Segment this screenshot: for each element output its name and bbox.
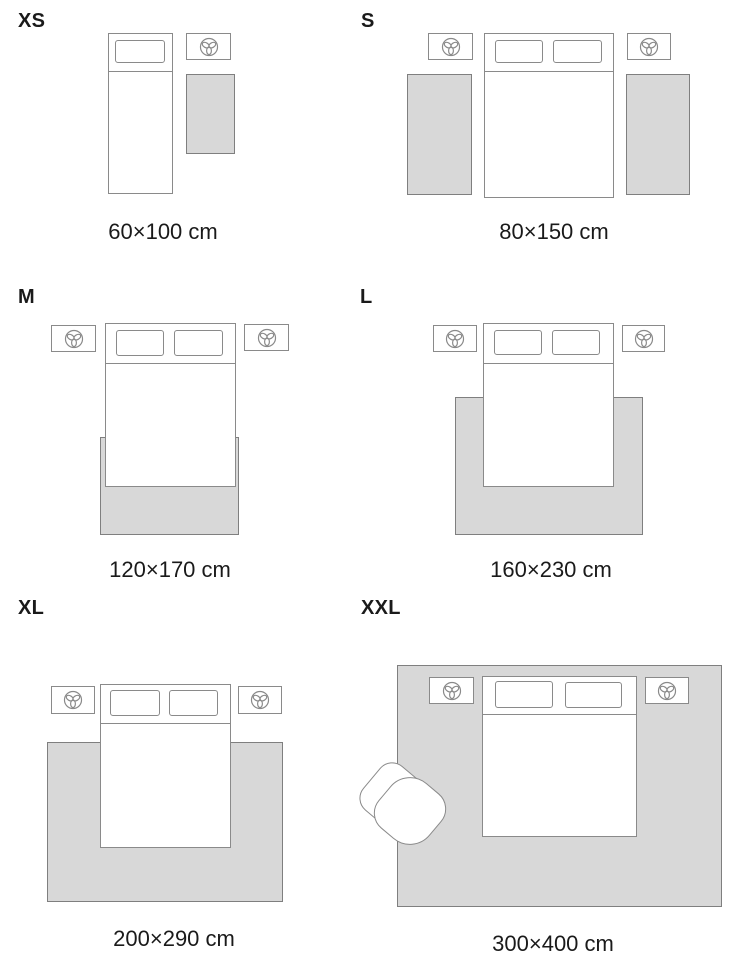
- plant-icon: [440, 36, 462, 58]
- double-bed: [482, 676, 637, 837]
- panel-xl-title: XL: [18, 597, 44, 619]
- single-bed: [108, 33, 173, 194]
- pillow: [495, 681, 553, 708]
- rug-left: [407, 74, 472, 195]
- panel-xl: XL: [0, 590, 360, 960]
- pillow: [115, 40, 165, 63]
- panel-m-size: 120×170 cm: [109, 558, 231, 582]
- pillow: [552, 330, 600, 355]
- plant-icon: [656, 680, 678, 702]
- nightstand: [51, 686, 95, 714]
- pillow: [494, 330, 542, 355]
- double-bed: [105, 323, 236, 487]
- armchair: [363, 765, 443, 849]
- nightstand: [51, 325, 96, 352]
- plant-icon: [444, 328, 466, 350]
- nightstand: [622, 325, 665, 352]
- nightstand: [238, 686, 282, 714]
- panel-l: L: [360, 280, 740, 590]
- panel-xxl-size: 300×400 cm: [492, 932, 614, 956]
- panel-xs-title: XS: [18, 10, 45, 32]
- panel-s: S: [360, 0, 740, 260]
- panel-l-title: L: [360, 286, 373, 308]
- pillow: [110, 690, 160, 716]
- panel-s-title: S: [361, 10, 375, 32]
- plant-icon: [638, 36, 660, 58]
- nightstand: [645, 677, 689, 704]
- nightstand: [627, 33, 671, 60]
- double-bed: [483, 323, 614, 487]
- nightstand: [433, 325, 477, 352]
- plant-icon: [441, 680, 463, 702]
- panel-m-title: M: [18, 286, 35, 308]
- panel-xl-size: 200×290 cm: [113, 927, 235, 951]
- plant-icon: [256, 327, 278, 349]
- panel-xxl: XXL: [360, 590, 740, 960]
- nightstand: [244, 324, 289, 351]
- rug-size-guide: XS 60×100 cm S: [0, 0, 740, 960]
- plant-icon: [62, 689, 84, 711]
- panel-l-size: 160×230 cm: [490, 558, 612, 582]
- double-bed: [100, 684, 231, 848]
- plant-icon: [198, 36, 220, 58]
- pillow: [495, 40, 543, 63]
- double-bed: [484, 33, 614, 198]
- panel-xs-size: 60×100 cm: [108, 220, 217, 244]
- panel-m: M: [0, 280, 360, 590]
- panel-xs: XS 60×100 cm: [0, 0, 360, 260]
- plant-icon: [249, 689, 271, 711]
- pillow: [565, 682, 622, 708]
- nightstand: [428, 33, 473, 60]
- rug: [186, 74, 235, 154]
- nightstand: [429, 677, 474, 704]
- pillow: [116, 330, 164, 356]
- nightstand: [186, 33, 231, 60]
- panel-s-size: 80×150 cm: [499, 220, 608, 244]
- rug-right: [626, 74, 690, 195]
- plant-icon: [633, 328, 655, 350]
- plant-icon: [63, 328, 85, 350]
- pillow: [169, 690, 218, 716]
- panel-xxl-title: XXL: [361, 597, 401, 619]
- pillow: [174, 330, 223, 356]
- pillow: [553, 40, 602, 63]
